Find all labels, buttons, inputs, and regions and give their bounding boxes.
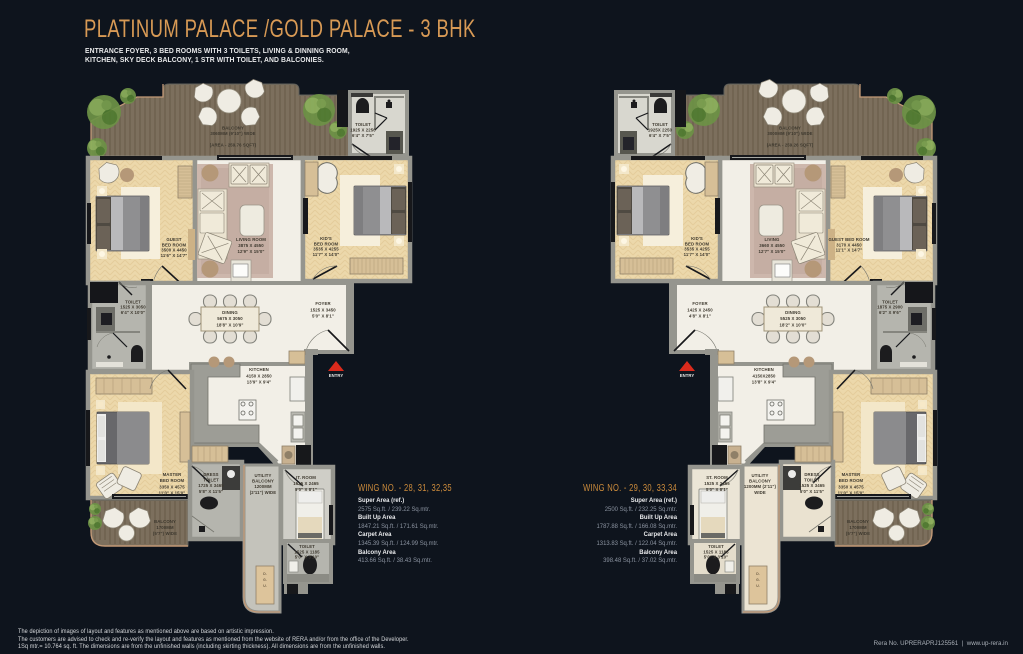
svg-text:ST. ROOM: ST. ROOM (706, 475, 728, 480)
svg-text:G.: G. (756, 578, 760, 582)
svg-text:5'0" X 3'10": 5'0" X 3'10" (295, 555, 320, 560)
svg-text:GUEST BED ROOM: GUEST BED ROOM (828, 237, 869, 242)
svg-text:TOILET: TOILET (804, 478, 820, 483)
svg-text:(5'7") WIDE: (5'7") WIDE (846, 531, 870, 536)
svg-text:12'9" X 15'0": 12'9" X 15'0" (237, 249, 264, 254)
svg-text:GUEST: GUEST (166, 237, 182, 242)
svg-text:D.: D. (263, 572, 267, 576)
svg-text:BED ROOM: BED ROOM (314, 241, 339, 246)
svg-text:1525 X 1185: 1525 X 1185 (294, 549, 320, 554)
svg-text:UTILITY: UTILITY (255, 473, 272, 478)
svg-text:KID'S: KID'S (691, 236, 703, 241)
svg-text:LIVING: LIVING (765, 237, 780, 242)
svg-text:1525 X 2465: 1525 X 2465 (293, 481, 319, 486)
svg-text:18'2" X 10'0": 18'2" X 10'0" (779, 322, 806, 327)
svg-text:BALCONY: BALCONY (222, 126, 244, 131)
svg-text:BED ROOM: BED ROOM (162, 242, 187, 247)
svg-text:3060MM (9'10") WIDE: 3060MM (9'10") WIDE (210, 131, 255, 136)
svg-text:1725 X 3465: 1725 X 3465 (198, 483, 224, 488)
svg-text:WIDE: WIDE (754, 490, 766, 495)
svg-text:6'4" X 7'5": 6'4" X 7'5" (352, 133, 374, 138)
svg-text:DINING: DINING (222, 310, 238, 315)
svg-text:1700MM: 1700MM (849, 525, 867, 530)
svg-text:5'0" X 3'10": 5'0" X 3'10" (704, 555, 729, 560)
svg-text:DRESS: DRESS (804, 472, 819, 477)
svg-text:1525 X 2465: 1525 X 2465 (704, 481, 730, 486)
svg-text:1700MM: 1700MM (156, 525, 174, 530)
svg-text:4'8" X 8'1": 4'8" X 8'1" (689, 314, 711, 319)
svg-text:11'6" X 14'7": 11'6" X 14'7" (161, 253, 188, 258)
svg-text:3170 X 4450: 3170 X 4450 (836, 242, 862, 247)
svg-text:U.: U. (263, 584, 267, 588)
svg-text:5'0" X 11'5": 5'0" X 11'5" (800, 489, 824, 494)
svg-text:D.: D. (756, 572, 760, 576)
svg-text:UTILITY: UTILITY (752, 473, 769, 478)
svg-text:3350 X 4575: 3350 X 4575 (838, 484, 864, 489)
svg-text:1525 X 1185: 1525 X 1185 (703, 549, 729, 554)
svg-text:BALCONY: BALCONY (252, 479, 274, 484)
svg-text:5'8" X 11'5": 5'8" X 11'5" (199, 489, 223, 494)
svg-text:BALCONY: BALCONY (779, 126, 801, 131)
svg-text:11'0" X 15'0": 11'0" X 15'0" (838, 491, 865, 496)
svg-text:(5'7") WIDE: (5'7") WIDE (153, 531, 177, 536)
svg-text:U.: U. (756, 584, 760, 588)
svg-text:13'9" X 9'4": 13'9" X 9'4" (247, 380, 272, 385)
svg-text:DRESS: DRESS (203, 472, 218, 477)
svg-text:5'0" X 8'1": 5'0" X 8'1" (295, 487, 317, 492)
svg-text:3535 X 4255: 3535 X 4255 (313, 247, 339, 252)
svg-text:1525 X 3465: 1525 X 3465 (799, 483, 825, 488)
svg-text:KID'S: KID'S (320, 236, 332, 241)
svg-text:5525 X 3050: 5525 X 3050 (780, 316, 806, 321)
svg-text:11'7" X 14'0": 11'7" X 14'0" (313, 252, 340, 257)
svg-text:3350 X 4575: 3350 X 4575 (159, 484, 185, 489)
svg-text:BALCONY: BALCONY (154, 519, 176, 524)
svg-text:1200MM: 1200MM (254, 484, 272, 489)
svg-text:(2'11") WIDE: (2'11") WIDE (250, 490, 276, 495)
svg-text:6'2" X 9'6": 6'2" X 9'6" (879, 310, 901, 315)
svg-text:3500 X 4450: 3500 X 4450 (161, 248, 187, 253)
svg-text:IT. ROOM: IT. ROOM (296, 475, 316, 480)
svg-text:1525 X 3450: 1525 X 3450 (310, 307, 336, 312)
svg-text:3660 X 4550: 3660 X 4550 (759, 243, 785, 248)
svg-text:11'7" X 14'0": 11'7" X 14'0" (684, 252, 711, 257)
svg-text:11'1" X 14'7": 11'1" X 14'7" (836, 248, 863, 253)
svg-text:18'8" X 10'9": 18'8" X 10'9" (216, 322, 243, 327)
svg-text:4150X2850: 4150X2850 (753, 373, 776, 378)
svg-text:TOILET: TOILET (355, 122, 371, 127)
svg-text:TOILET: TOILET (299, 544, 315, 549)
svg-text:BALCONY: BALCONY (847, 519, 869, 524)
svg-text:(AREA - 259.26 SQFT): (AREA - 259.26 SQFT) (767, 142, 814, 147)
svg-text:MASTER: MASTER (842, 472, 862, 477)
svg-text:5675 X 3050: 5675 X 3050 (217, 316, 243, 321)
svg-text:1925 X 2250: 1925 X 2250 (350, 128, 376, 133)
svg-text:BED ROOM: BED ROOM (160, 478, 185, 483)
svg-text:5'0" X 8'1": 5'0" X 8'1" (312, 314, 334, 319)
svg-text:3535 X 4255: 3535 X 4255 (684, 247, 710, 252)
svg-text:FOYER: FOYER (692, 301, 708, 306)
svg-text:3875 X 4550: 3875 X 4550 (238, 243, 264, 248)
svg-text:MASTER: MASTER (163, 472, 183, 477)
svg-text:KITCHEN: KITCHEN (249, 367, 269, 372)
svg-text:G.: G. (263, 578, 267, 582)
svg-text:6'4" X 10'0": 6'4" X 10'0" (121, 310, 146, 315)
svg-text:6'4" X 7'5": 6'4" X 7'5" (649, 133, 671, 138)
svg-text:1425 X 2450: 1425 X 2450 (687, 307, 713, 312)
svg-text:BALCONY: BALCONY (749, 479, 771, 484)
svg-text:KITCHEN: KITCHEN (754, 367, 774, 372)
svg-text:TOILET: TOILET (708, 544, 724, 549)
svg-text:(AREA - 259.76 SQFT): (AREA - 259.76 SQFT) (210, 142, 257, 147)
svg-text:BED ROOM: BED ROOM (685, 241, 710, 246)
svg-text:1925X 2250: 1925X 2250 (648, 128, 673, 133)
svg-text:TOILET: TOILET (652, 122, 668, 127)
svg-text:FOYER: FOYER (315, 301, 331, 306)
svg-text:3000MM (9'10") WIDE: 3000MM (9'10") WIDE (767, 131, 812, 136)
svg-text:LIVING ROOM: LIVING ROOM (236, 237, 266, 242)
svg-text:11'0" X 15'0": 11'0" X 15'0" (159, 491, 186, 496)
svg-text:DINING: DINING (785, 310, 801, 315)
svg-text:13'8" X 9'4": 13'8" X 9'4" (752, 380, 777, 385)
svg-text:5'0" X 8'1": 5'0" X 8'1" (706, 487, 728, 492)
svg-text:4150 X 2850: 4150 X 2850 (246, 373, 272, 378)
svg-text:12'7" X 15'0": 12'7" X 15'0" (758, 249, 785, 254)
svg-text:BED ROOM: BED ROOM (839, 478, 864, 483)
svg-text:TOILET: TOILET (203, 478, 219, 483)
svg-text:1200MM (2'11"): 1200MM (2'11") (744, 484, 777, 489)
svg-text:ENTRY: ENTRY (680, 373, 695, 378)
svg-text:ENTRY: ENTRY (329, 373, 344, 378)
